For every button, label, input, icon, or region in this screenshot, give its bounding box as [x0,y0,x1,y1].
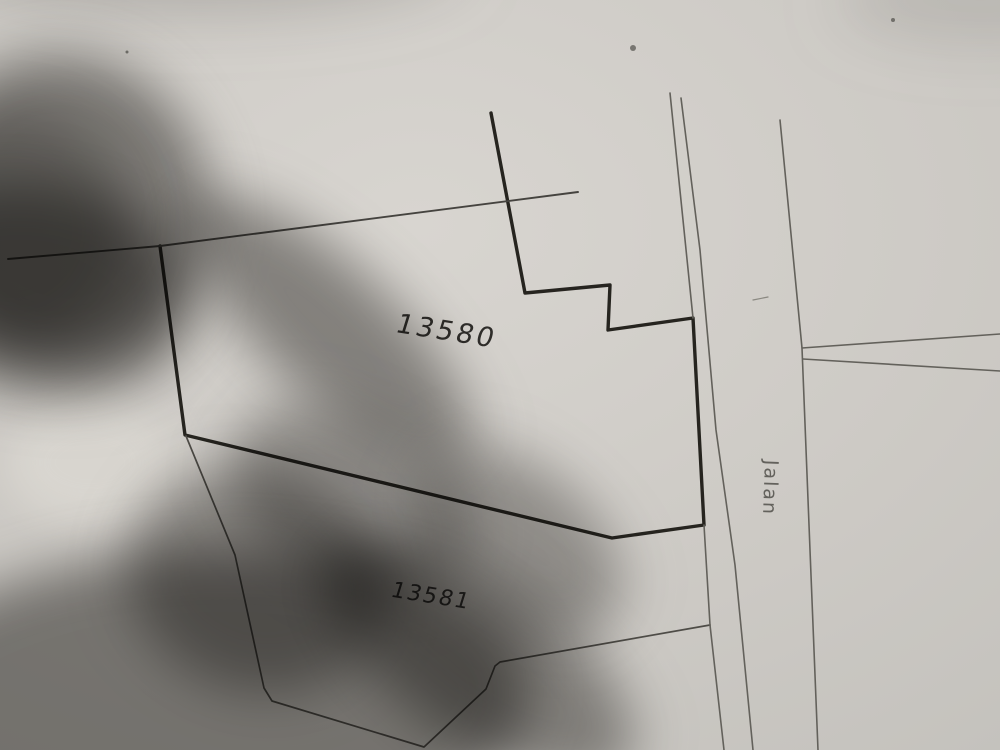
survey-plan-photo: 13580 13581 Jalan [0,0,1000,750]
ink-speck-topright [891,18,895,22]
plan-lines [0,0,1000,750]
ink-dash [753,297,768,300]
road-label-jalan: Jalan [760,458,782,519]
road-edge-west-lower [704,525,724,750]
road-edge-west-upper [670,93,693,318]
road-edge-mid [681,98,753,750]
ink-speck-left [126,51,129,54]
ink-dot-top [630,45,636,51]
branch-line-lower [803,359,1000,371]
boundary-long-line [8,192,578,259]
road-edge-east [780,120,818,750]
branch-line-upper [802,334,1000,348]
